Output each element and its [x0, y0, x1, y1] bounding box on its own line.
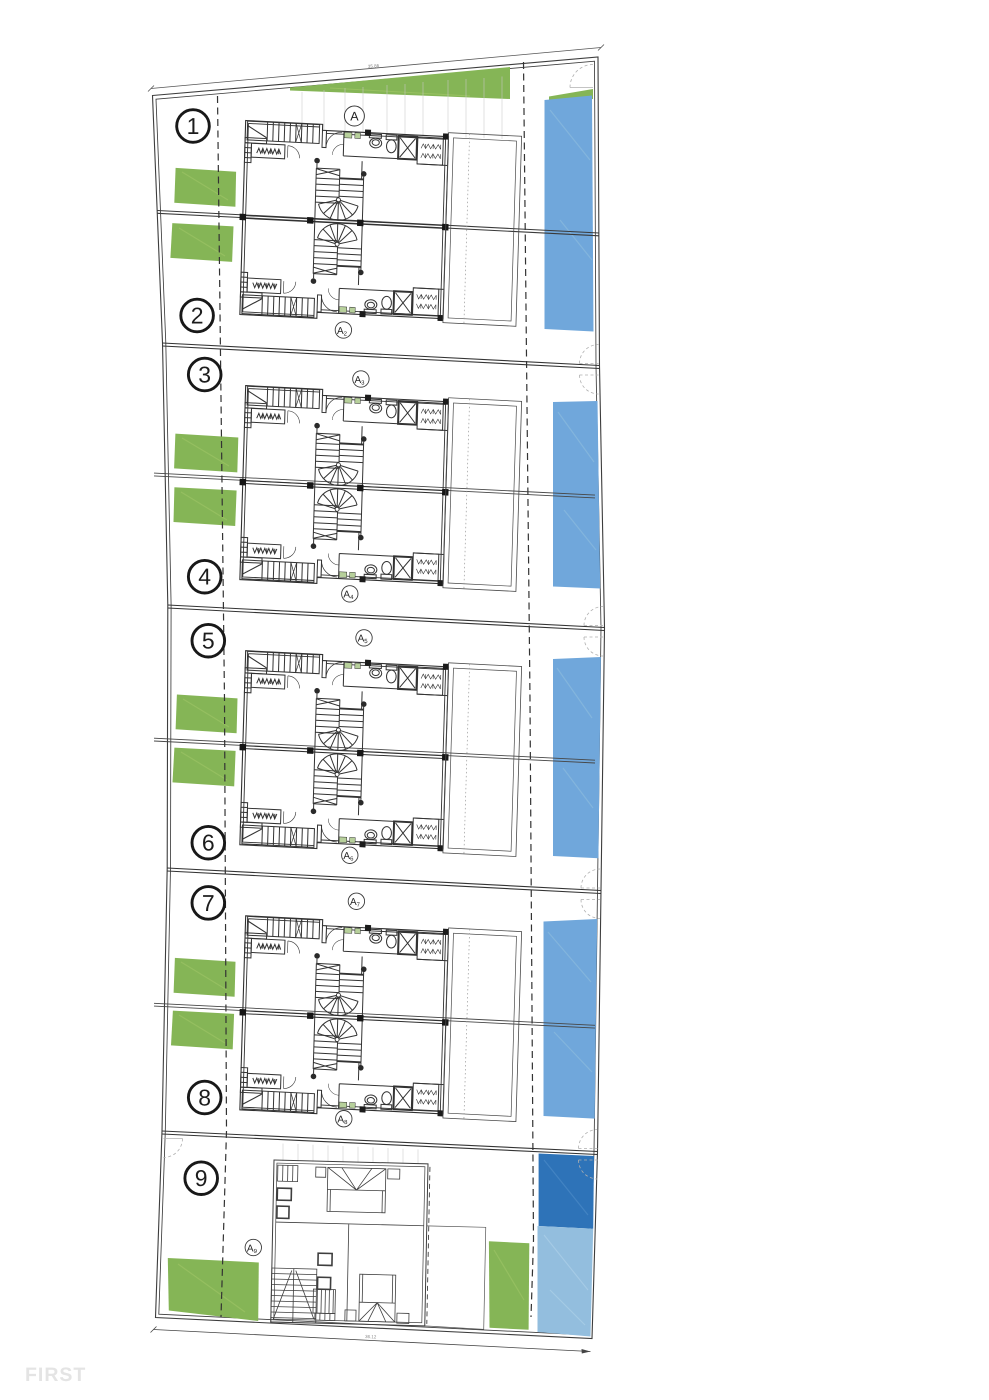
svg-text:6: 6: [202, 830, 215, 856]
svg-text:4: 4: [198, 564, 211, 590]
svg-text:36.12: 36.12: [365, 1334, 377, 1340]
svg-text:1: 1: [187, 113, 200, 139]
svg-text:35.86: 35.86: [368, 63, 380, 69]
svg-text:8: 8: [198, 1085, 211, 1111]
svg-text:9: 9: [195, 1165, 208, 1191]
svg-text:FIRST: FIRST: [25, 1364, 86, 1386]
svg-text:2: 2: [191, 303, 204, 329]
svg-text:5: 5: [202, 628, 215, 654]
svg-text:A: A: [350, 110, 359, 124]
svg-text:3: 3: [198, 362, 211, 388]
svg-text:7: 7: [202, 890, 215, 916]
